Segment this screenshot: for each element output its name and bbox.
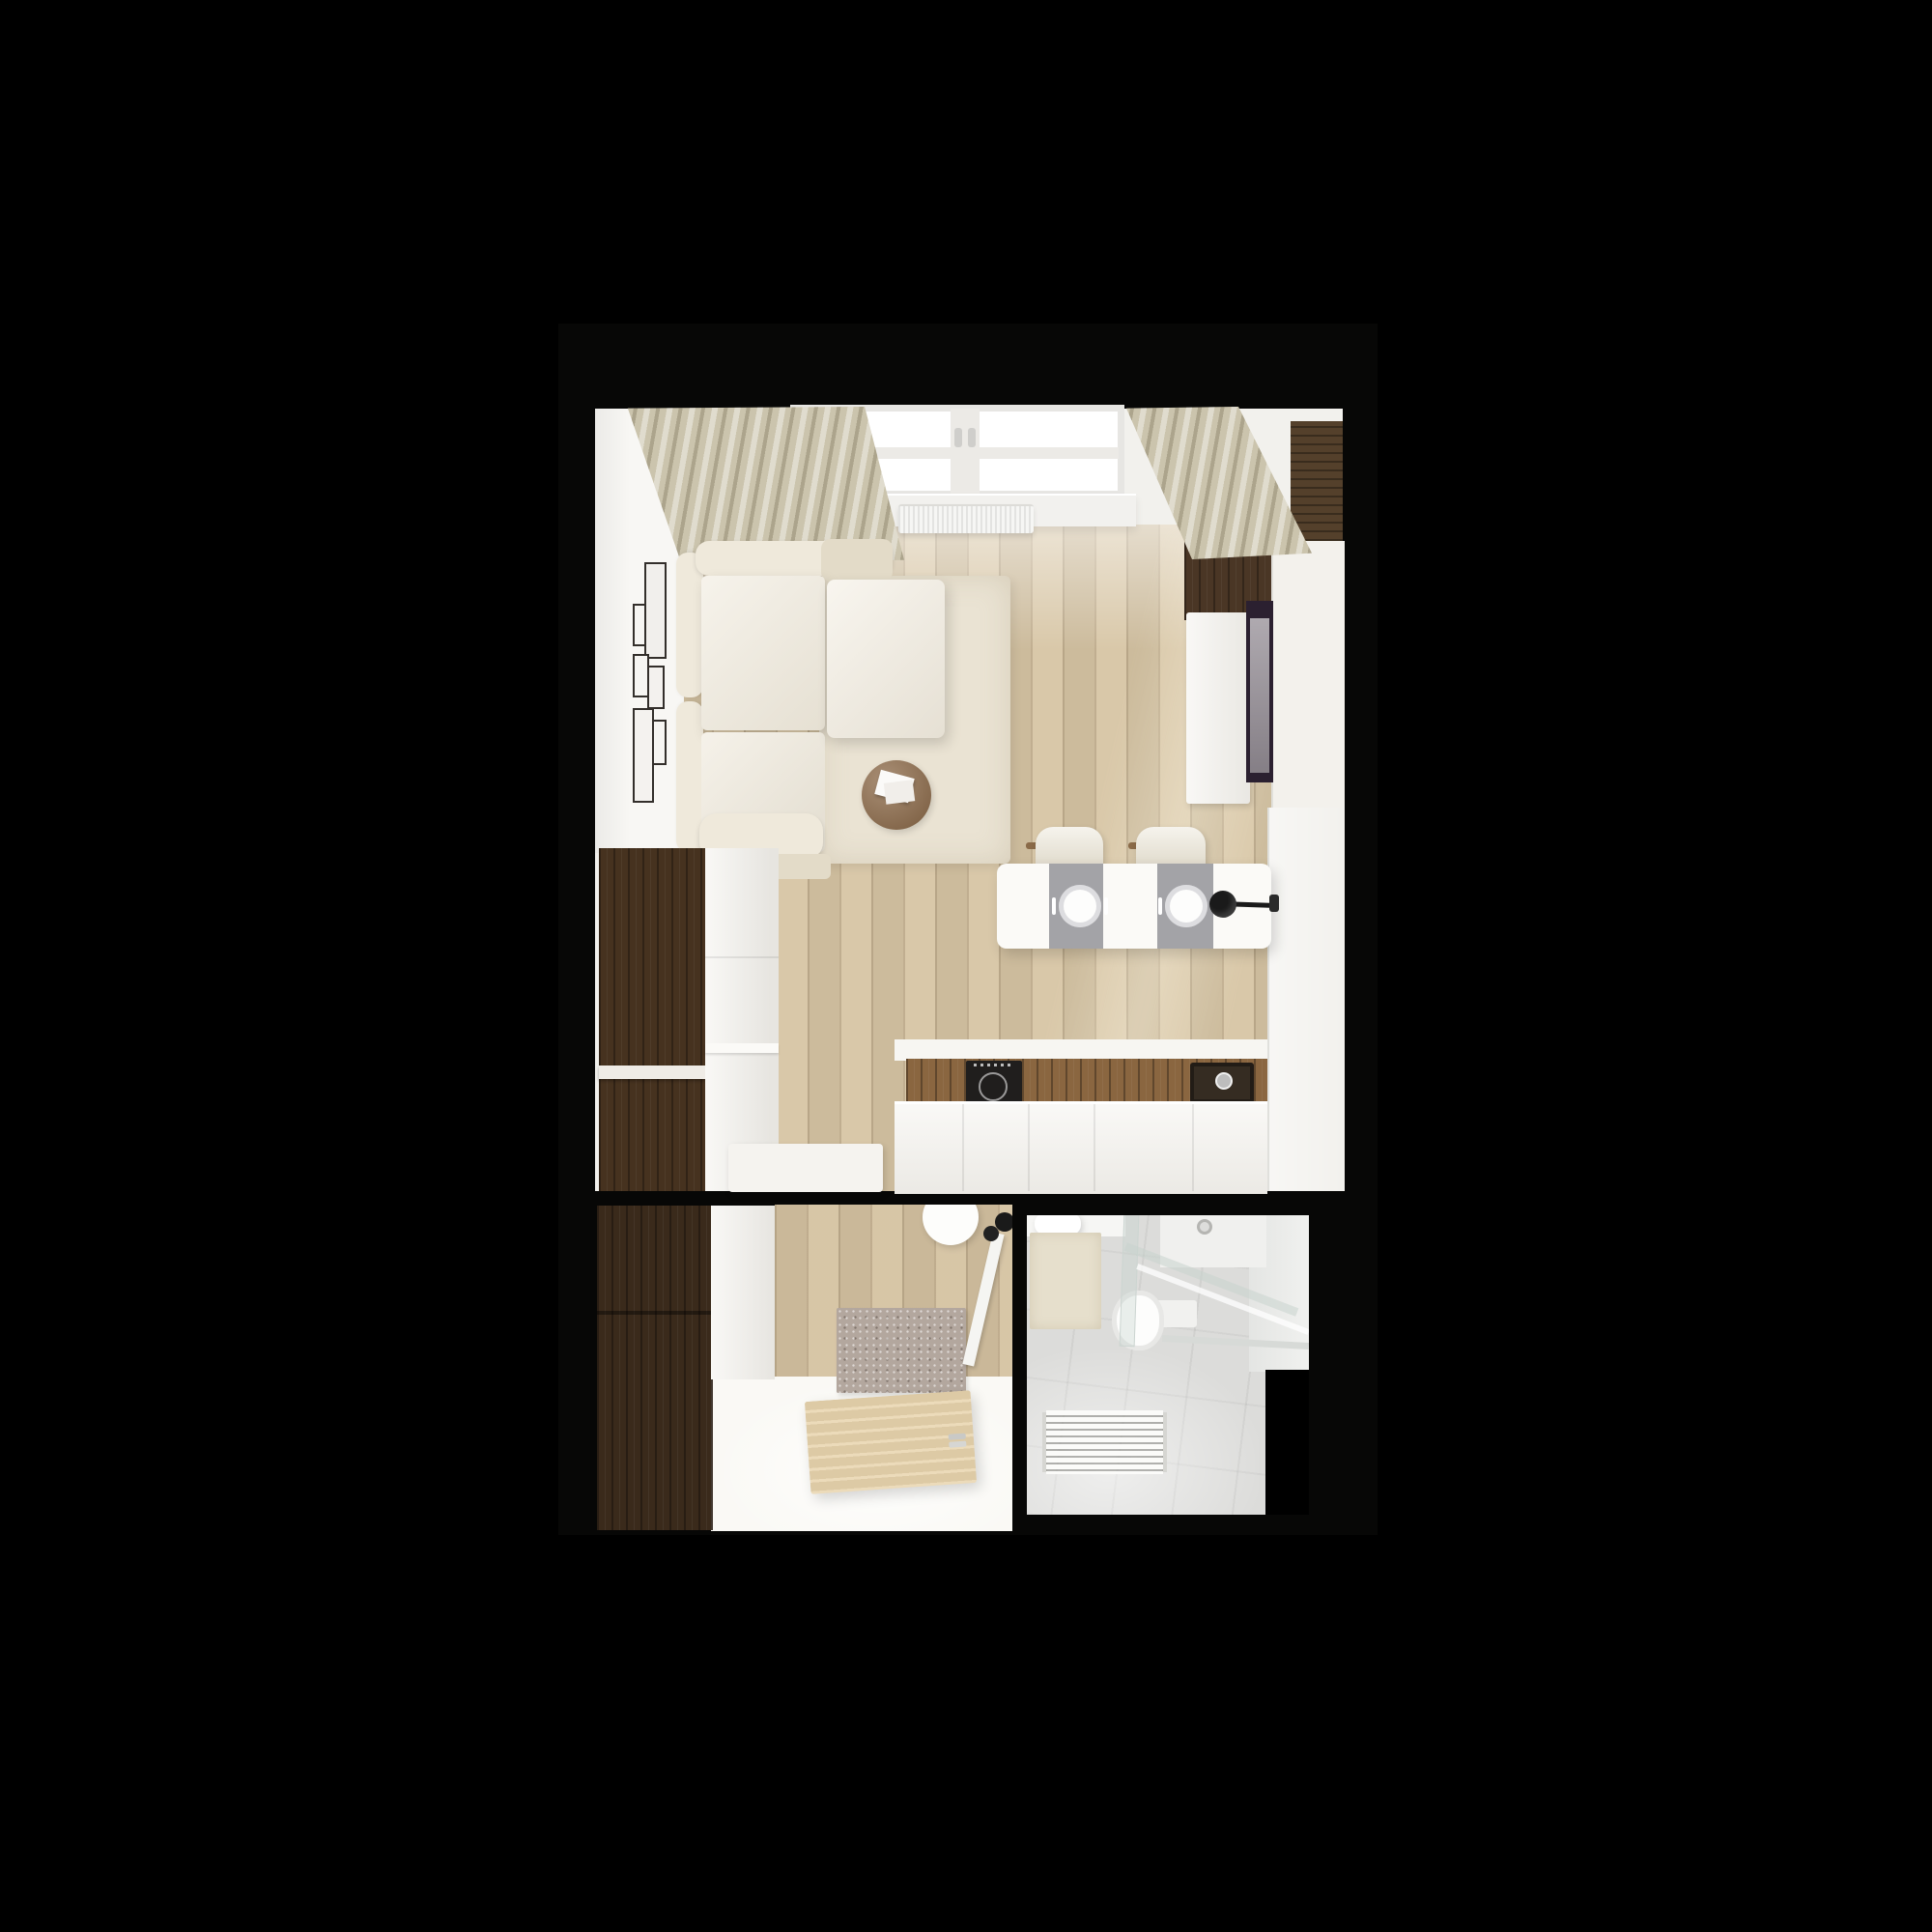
shower-tray [1160,1215,1266,1267]
window-handle [954,428,962,447]
cutlery [1104,897,1108,915]
sofa-seat [701,576,825,730]
picture-frame [647,666,665,709]
picture-frame [633,708,654,803]
tv-screen [1250,618,1269,773]
doormat [837,1308,966,1393]
cutlery [1158,897,1162,915]
kitchen-tall-cabinet-dark [599,848,705,1191]
right-wall [1267,808,1345,1191]
sink-basin [1035,1215,1081,1235]
window-mullion [951,409,980,494]
towel-ladder [1042,1410,1168,1474]
cabinet-seam [705,956,779,958]
hallway-wardrobe [597,1206,713,1530]
counter-seam [1094,1104,1095,1191]
hallway [595,1205,1012,1531]
ladder-bars [1046,1410,1163,1474]
bathroom-black-notch [1265,1370,1309,1515]
wall-hook [983,1226,999,1241]
picture-frame [652,720,667,765]
wall-lamp-head [1209,891,1236,918]
plate [1165,885,1207,927]
wardrobe-divider [597,1311,711,1315]
plate [1059,885,1101,927]
magazine [884,780,915,804]
cabinet-seam [705,1043,779,1053]
counter-top-band [895,1039,1267,1061]
picture-frame [644,562,667,659]
faucet [1215,1072,1233,1090]
radiator [898,504,1034,533]
counter-front [895,1101,1267,1194]
kitchen-tall-cabinet-white [705,848,779,1191]
cooktop-controls [974,1064,1014,1066]
wall-lamp-mount [1269,895,1279,912]
apartment-render [0,0,1932,1932]
tall-wardrobe [1271,541,1345,821]
sofa-ottoman [827,580,945,738]
counter-seam [1192,1104,1194,1191]
hallway-white-cabinet [711,1206,775,1379]
entry-door [805,1390,977,1494]
bath-mat [1030,1233,1101,1329]
shower-drain [1197,1219,1212,1235]
window-handle [968,428,976,447]
kitchen-cabinet-divider [599,1065,705,1079]
cutlery [1052,897,1056,915]
sofa-cushion [821,539,893,582]
low-bench [728,1144,883,1192]
media-console [1186,612,1250,804]
counter-seam [962,1104,964,1191]
door-handle [949,1434,966,1440]
bathroom [1027,1215,1309,1515]
sofa-back-cushion [676,553,703,697]
counter-seam [1028,1104,1030,1191]
cooktop-ring [979,1072,1008,1101]
